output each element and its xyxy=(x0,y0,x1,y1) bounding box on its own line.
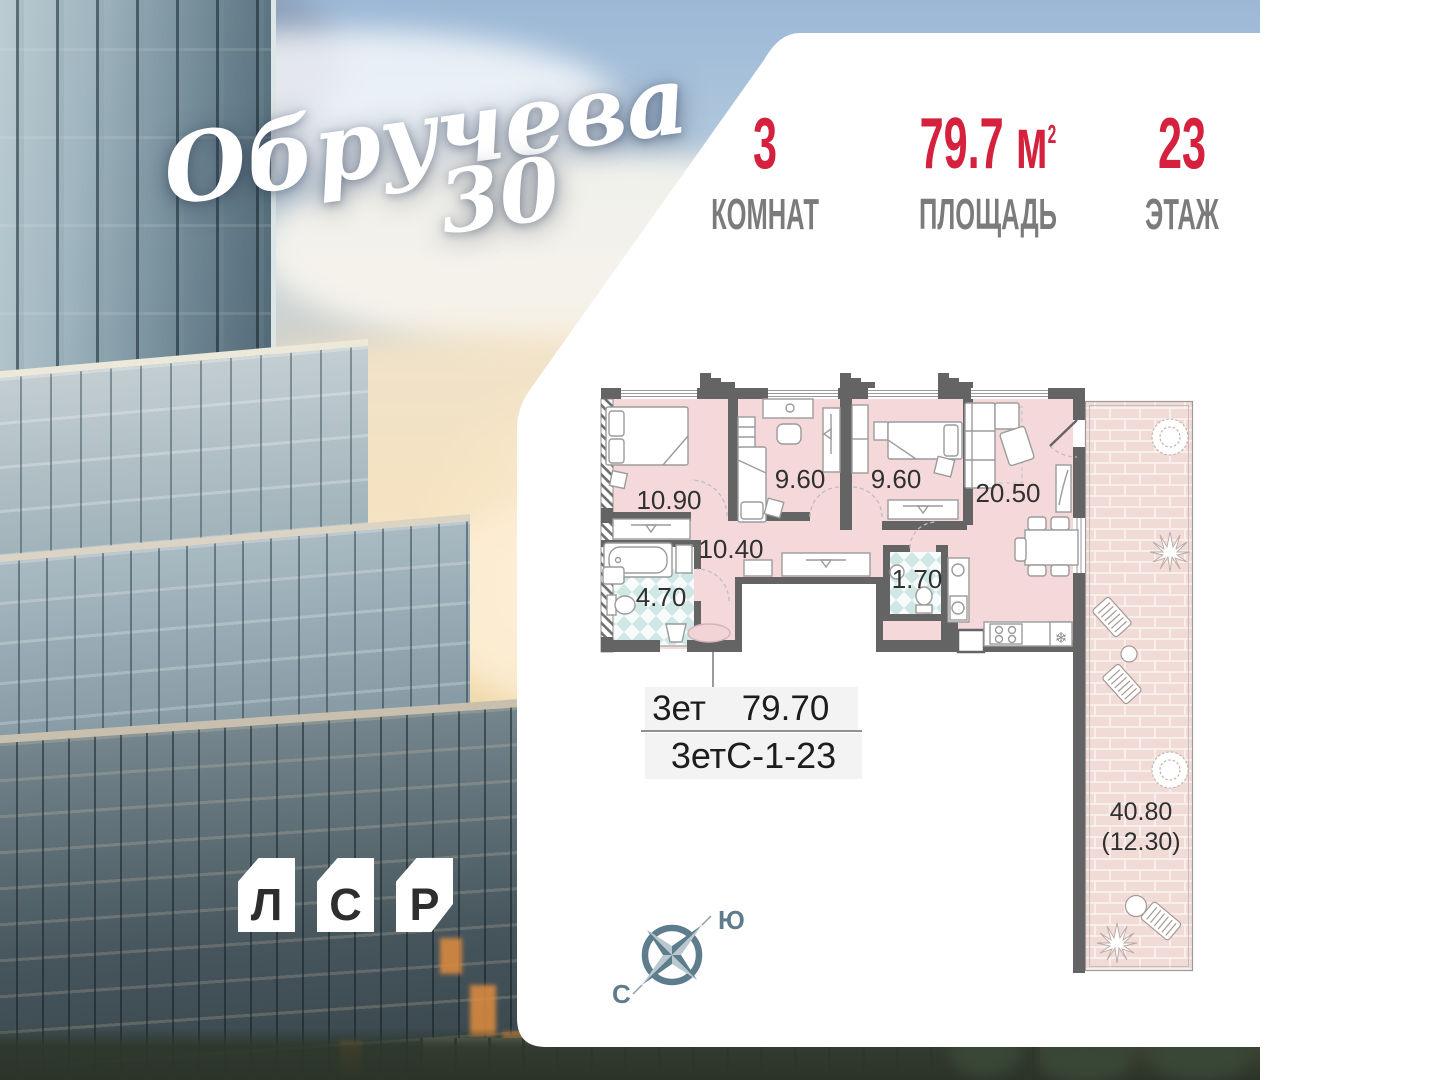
stat-floor: 23 ЭТАЖ xyxy=(1062,108,1302,237)
room-area-label: 9.60 xyxy=(871,464,922,494)
compass-north-label: С xyxy=(612,979,631,1009)
plan-type-cell: 3ет xyxy=(645,689,713,729)
table-divider xyxy=(641,730,862,732)
compass-south-label: Ю xyxy=(718,905,745,935)
developer-letter-tile: Л xyxy=(238,858,295,932)
developer-letter-tile: С xyxy=(317,858,374,932)
developer-letter: С xyxy=(329,879,362,931)
developer-letter-tile: Р xyxy=(396,858,453,932)
stat-rooms: 3 КОМНАТ xyxy=(645,108,885,237)
terrace-area-label: 40.80 xyxy=(1110,798,1173,826)
room-area-label: 4.70 xyxy=(636,582,687,612)
stat-rooms-value: 3 xyxy=(693,108,837,180)
developer-letter: Л xyxy=(251,879,283,931)
stat-area-value: 79.7 м2 xyxy=(916,108,1060,180)
compass-icon: Ю С xyxy=(598,903,748,1013)
fridge-snowflake-icon: ❄ xyxy=(1055,630,1068,647)
room-area-label: 9.60 xyxy=(775,464,826,494)
plan-area-cell: 79.70 xyxy=(713,689,858,729)
plan-code-cell: 3етС-1-23 xyxy=(645,733,862,779)
developer-logo: Л С Р xyxy=(238,858,453,932)
stat-floor-value: 23 xyxy=(1110,108,1254,180)
stat-floor-label: ЭТАЖ xyxy=(1112,193,1251,237)
plan-info-row: 3ет 79.70 xyxy=(645,687,858,731)
room-area-label: 20.50 xyxy=(975,478,1040,508)
stat-area-label: ПЛОЩАДЬ xyxy=(918,193,1057,237)
terrace-reduced-area-label: (12.30) xyxy=(1101,828,1180,856)
room-area-label: 1.70 xyxy=(892,564,943,594)
developer-letter: Р xyxy=(409,879,439,931)
compass-star xyxy=(642,925,702,985)
floor-plan: 10.90 9.60 9.60 20.50 10.40 4.70 1.70 40… xyxy=(590,355,1205,980)
stat-rooms-label: КОМНАТ xyxy=(695,193,834,237)
room-area-label: 10.40 xyxy=(698,534,763,564)
room-area-label: 10.90 xyxy=(636,485,701,515)
